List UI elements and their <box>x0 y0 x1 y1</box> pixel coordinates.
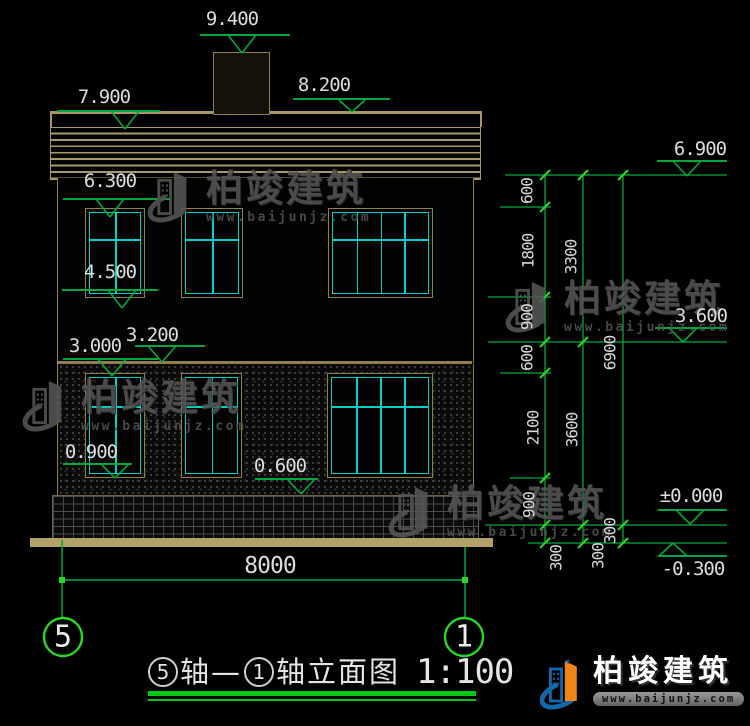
level-triangle <box>111 111 125 129</box>
level-value-3.000: 3.000 <box>69 335 121 357</box>
level-triangle <box>242 35 256 53</box>
dim-label-300: 300 <box>601 518 620 544</box>
brand-building-icon <box>540 655 588 715</box>
title-underline-thick <box>148 691 476 696</box>
level-triangle <box>110 199 124 217</box>
level-triangle <box>338 99 352 112</box>
level-value-0.900: 0.900 <box>65 441 117 463</box>
level-triangle <box>228 35 242 53</box>
level-triangle <box>108 290 122 308</box>
elevation-drawing-canvas: 5轴—1轴立面图1:100 柏竣建筑 www.baijunjz.com 9.40… <box>0 0 750 726</box>
dim-label-600: 600 <box>518 178 537 204</box>
level-triangle <box>690 510 704 524</box>
dim-label-300: 300 <box>547 545 566 571</box>
brand-name: 柏竣建筑 <box>593 655 744 690</box>
level-triangle <box>352 99 366 112</box>
dim-label-3300: 3300 <box>562 240 581 275</box>
level-triangle <box>676 510 690 524</box>
title-underline-thin <box>148 699 476 701</box>
dim-label-900: 900 <box>518 304 537 330</box>
drawing-title: 5轴—1轴立面图1:100 <box>148 652 513 692</box>
level-triangle <box>301 479 315 494</box>
level-triangle <box>683 328 697 342</box>
level-value-±0.000: ±0.000 <box>660 485 723 507</box>
dim-end-dot <box>462 577 468 583</box>
level-triangle <box>96 199 110 217</box>
level-triangle <box>98 359 112 376</box>
level-triangle <box>669 328 683 342</box>
dim-label-1800: 1800 <box>519 234 538 269</box>
level-triangle <box>101 464 115 478</box>
level-value-3.600: 3.600 <box>675 305 727 327</box>
level-triangle <box>659 543 673 556</box>
level-value-4.500: 4.500 <box>84 261 136 283</box>
dimension-overlay <box>0 0 750 726</box>
level-triangle <box>162 346 176 362</box>
level-value--0.300: -0.300 <box>662 558 725 580</box>
level-triangle <box>673 161 687 176</box>
title-axis-bubble-5: 5 <box>148 657 178 687</box>
level-triangle <box>673 543 687 556</box>
level-triangle <box>125 111 139 129</box>
level-triangle <box>115 464 129 478</box>
level-value-6.900: 6.900 <box>674 138 726 160</box>
title-axis-bubble-1: 1 <box>244 657 274 687</box>
title-scale: 1:100 <box>416 652 513 692</box>
axis-number-5: 5 <box>54 620 72 655</box>
dim-label-600: 600 <box>518 345 537 371</box>
brand-logo: 柏竣建筑 www.baijunjz.com <box>540 655 744 715</box>
dim-end-dot <box>59 577 65 583</box>
axis-number-1: 1 <box>455 620 473 655</box>
dim-label-2100: 2100 <box>524 411 543 446</box>
level-value-9.400: 9.400 <box>206 8 258 30</box>
level-value-6.300: 6.300 <box>84 170 136 192</box>
dim-label-6900: 6900 <box>601 336 620 371</box>
dim-label-300: 300 <box>589 543 608 569</box>
dim-label-900: 900 <box>520 492 539 518</box>
brand-url: www.baijunjz.com <box>593 692 744 706</box>
level-value-0.600: 0.600 <box>254 455 306 477</box>
title-text-sep: 轴— <box>180 658 242 687</box>
level-triangle <box>687 161 701 176</box>
title-text-suffix: 轴立面图 <box>276 658 400 687</box>
level-triangle <box>122 290 136 308</box>
level-triangle <box>287 479 301 494</box>
overall-dim-value: 8000 <box>244 553 295 579</box>
dim-label-3600: 3600 <box>563 413 582 448</box>
level-value-7.900: 7.900 <box>78 86 130 108</box>
level-value-8.200: 8.200 <box>298 74 350 96</box>
level-value-3.200: 3.200 <box>126 324 178 346</box>
level-triangle <box>112 359 126 376</box>
